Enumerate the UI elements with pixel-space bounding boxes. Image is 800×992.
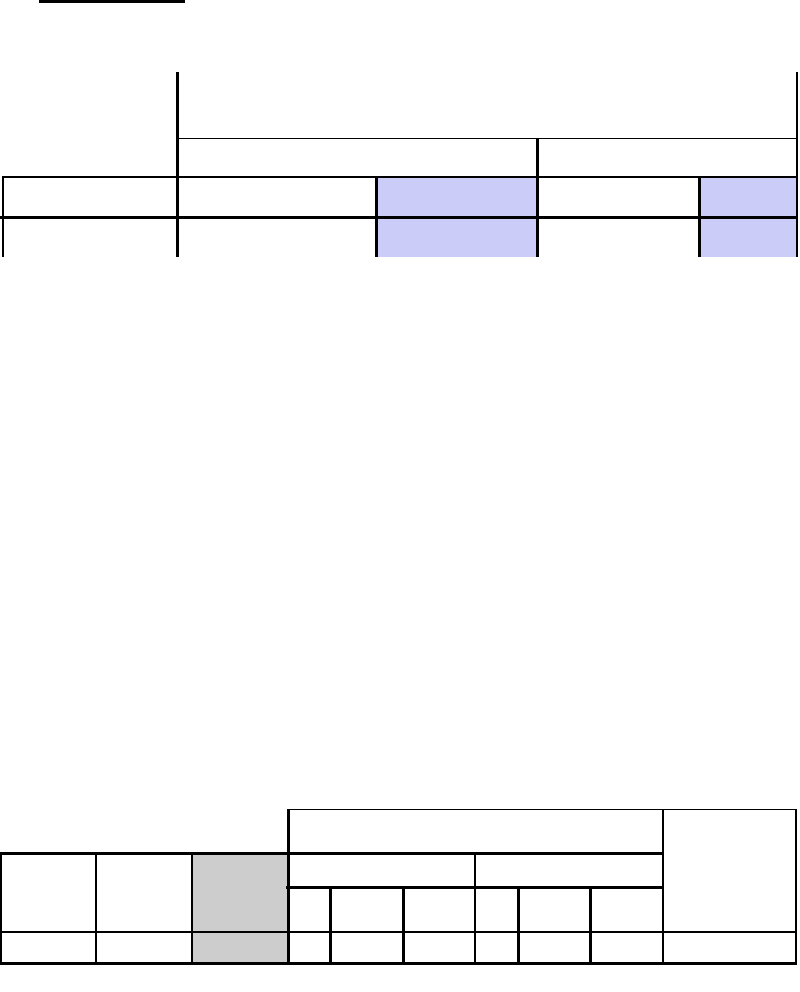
lower-table-hline-thick-1 bbox=[0, 852, 664, 855]
lower-table-vline-6 bbox=[474, 853, 476, 963]
lower-table-shaded-column-3 bbox=[192, 853, 288, 963]
lower-table-left-border bbox=[0, 853, 2, 963]
lower-table bbox=[0, 0, 800, 992]
lower-table-vline-2 bbox=[191, 853, 193, 963]
lower-table-right-border bbox=[795, 809, 797, 963]
lower-table-vline-8 bbox=[589, 887, 592, 963]
lower-table-hline-thin bbox=[0, 931, 797, 933]
lower-table-vline-1 bbox=[95, 853, 97, 963]
lower-table-vline-7 bbox=[517, 887, 520, 963]
lower-table-top-border bbox=[287, 809, 797, 811]
document-page bbox=[0, 0, 800, 992]
lower-table-vline-5 bbox=[402, 887, 405, 963]
lower-table-bottom-border bbox=[0, 962, 797, 965]
lower-table-vline-4 bbox=[329, 887, 332, 963]
lower-table-hline-thick-2 bbox=[286, 886, 664, 889]
